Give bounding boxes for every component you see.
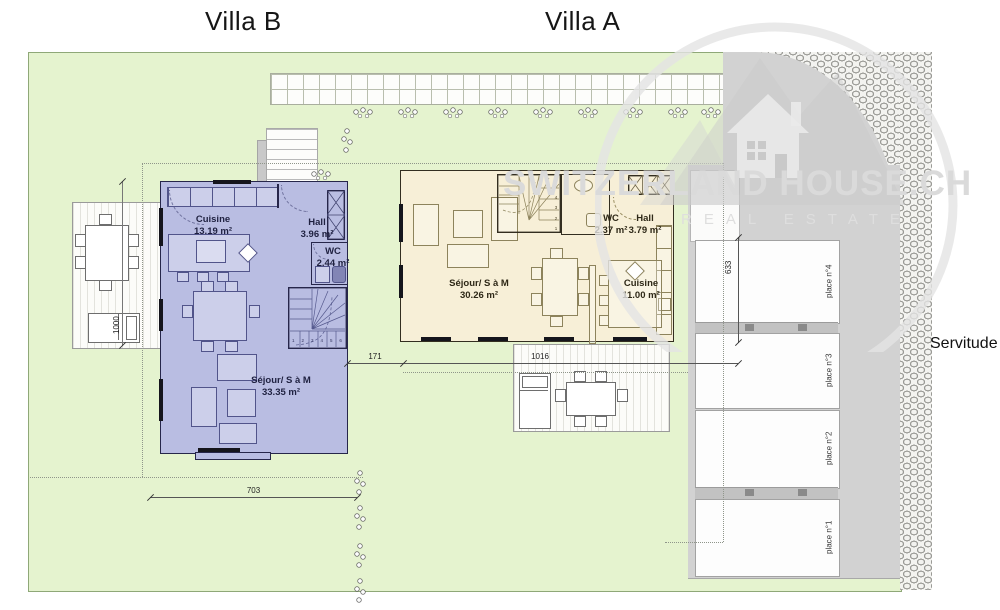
window (399, 204, 403, 242)
bush-icon (310, 168, 332, 181)
stool (599, 275, 609, 286)
room-name: WC (301, 246, 365, 258)
armchair (453, 210, 483, 238)
room-label-wc-b: WC 2.44 m² (301, 246, 365, 271)
stool (599, 315, 609, 326)
room-name: Cuisine (609, 278, 673, 290)
room-label-hall-b: Hall 3.96 m² (285, 217, 349, 242)
bollard (798, 489, 807, 496)
dining-chair (249, 305, 260, 318)
sofa (413, 204, 439, 246)
room-area: 11.00 m² (609, 290, 673, 302)
room-area: 30.26 m² (447, 290, 511, 302)
armchair (191, 387, 217, 427)
window (544, 337, 574, 341)
bush-icon (442, 106, 464, 119)
dimension-label-633: 633 (724, 248, 733, 274)
stair-numbers-villa-b: 123456 (292, 338, 342, 343)
dining-chair (225, 341, 238, 352)
window (213, 180, 251, 184)
parking-place-2 (695, 410, 840, 489)
lounge-chair (519, 373, 551, 429)
dining-chair (182, 305, 193, 318)
door-swing-arc (281, 185, 308, 212)
dining-table (542, 258, 578, 316)
sofa (219, 423, 257, 444)
parking-place-4 (695, 240, 840, 324)
stair-number: 2 (301, 338, 304, 343)
dimension-label-171: 171 (347, 352, 403, 361)
setback-line (723, 163, 724, 542)
washbasin (574, 179, 593, 192)
interior-wall (277, 184, 279, 208)
room-label-cuisine-a: Cuisine 11.00 m² (609, 278, 673, 303)
stair-number: 1 (552, 226, 560, 231)
room-name: Séjour/ S à M (447, 278, 511, 290)
dining-chair (550, 316, 563, 327)
parking-place-2-label: place n°2 (822, 410, 836, 487)
dimension-label-1016: 1016 (420, 352, 660, 361)
window (159, 208, 163, 246)
room-area: 33.35 m² (249, 387, 313, 399)
room-name: Cuisine (181, 214, 245, 226)
room-label-sejour-b: Séjour/ S à M 33.35 m² (249, 375, 313, 400)
villa-b-title: Villa B (205, 6, 282, 37)
garden-chair (75, 234, 86, 247)
room-label-sejour-a: Séjour/ S à M 30.26 m² (447, 278, 511, 303)
stool (177, 272, 189, 282)
bush-icon (667, 106, 689, 119)
cobblestone-strip (900, 52, 932, 590)
window (399, 265, 403, 298)
island-table (196, 240, 226, 263)
dining-table (193, 291, 247, 341)
bollard (798, 324, 807, 331)
counter-strip (589, 265, 596, 344)
dimension-line-front (347, 363, 738, 364)
stool (599, 295, 609, 306)
bush-icon (352, 106, 374, 119)
setback-line (30, 477, 363, 478)
bollard (745, 489, 754, 496)
setback-line (142, 163, 723, 164)
bush-icon (622, 106, 644, 119)
dimension-line-1000 (122, 181, 123, 346)
parking-place-1-label: place n°1 (822, 499, 836, 575)
garden-chair (99, 280, 112, 291)
garden-chair (595, 416, 607, 427)
parking-place-1 (695, 499, 840, 577)
garden-chair (75, 256, 86, 269)
servitude-label: Servitude (930, 335, 998, 353)
dining-chair (578, 267, 589, 280)
room-name: Séjour/ S à M (249, 375, 313, 387)
parking-place-4-label: place n°4 (822, 240, 836, 322)
dimension-line-703 (150, 497, 357, 498)
dining-chair (531, 267, 542, 280)
stair-numbers-villa-a: 1234 (552, 195, 560, 231)
parking-place-3 (695, 333, 840, 409)
villa-b-plan: 123456 Cuisine 13.19 m² Hall 3.96 m² WC … (160, 181, 348, 454)
bush-icon (700, 106, 722, 119)
window (421, 337, 451, 341)
dining-chair (531, 293, 542, 306)
garden-chair (555, 389, 566, 402)
stair-number: 5 (330, 338, 333, 343)
bush-icon (353, 576, 367, 606)
stair-number: 6 (339, 338, 342, 343)
stair-number: 1 (292, 338, 295, 343)
room-area: 2.44 m² (301, 258, 365, 270)
floor-plan-canvas: place n°4 place n°3 place n°2 place n°1 … (0, 0, 1000, 610)
bush-icon (353, 503, 367, 533)
room-name: Hall (285, 217, 349, 229)
garden-chair (128, 234, 139, 247)
stair-number: 3 (552, 205, 560, 210)
garden-chair (99, 214, 112, 225)
stair-number: 4 (552, 195, 560, 200)
stair-number: 2 (552, 216, 560, 221)
window (478, 337, 508, 341)
bush-icon (353, 541, 367, 571)
dimension-label-1000: 1000 (112, 306, 121, 334)
bush-icon (487, 106, 509, 119)
room-area: 13.19 m² (181, 226, 245, 238)
bush-icon (577, 106, 599, 119)
bollard (745, 324, 754, 331)
room-name: Hall (613, 213, 677, 225)
entry-pad (690, 170, 740, 242)
room-area: 3.79 m² (613, 225, 677, 237)
coffee-table (447, 244, 489, 268)
garden-chair (617, 389, 628, 402)
bush-icon (532, 106, 554, 119)
wardrobe-xbox (628, 175, 672, 195)
garden-chair (128, 256, 139, 269)
stair-number: 3 (311, 338, 314, 343)
garden-chair (574, 416, 586, 427)
setback-line (403, 372, 688, 373)
window (159, 379, 163, 421)
dining-chair (201, 341, 214, 352)
dining-chair (578, 293, 589, 306)
paved-grid-path (270, 73, 725, 105)
window (613, 337, 647, 341)
parking-place-3-label: place n°3 (822, 333, 836, 407)
dining-chair (201, 281, 214, 292)
exterior-step-villa-b (195, 452, 271, 460)
dimension-label-703: 703 (150, 486, 357, 495)
bush-icon (397, 106, 419, 119)
bush-icon (340, 126, 354, 156)
room-label-hall-a: Hall 3.79 m² (613, 213, 677, 238)
dimension-line-633 (738, 237, 739, 343)
room-area: 3.96 m² (285, 229, 349, 241)
room-label-cuisine-b: Cuisine 13.19 m² (181, 214, 245, 239)
garden-table (566, 382, 616, 416)
setback-line (142, 163, 143, 477)
dining-chair (550, 248, 563, 259)
window (159, 299, 163, 331)
dining-chair (225, 281, 238, 292)
villa-a-plan: 1234 Séjour/ S à M 30.26 m² WC 2.37 m² (400, 170, 674, 342)
stair-number: 4 (320, 338, 323, 343)
villa-a-title: Villa A (545, 6, 620, 37)
setback-line (665, 542, 723, 543)
